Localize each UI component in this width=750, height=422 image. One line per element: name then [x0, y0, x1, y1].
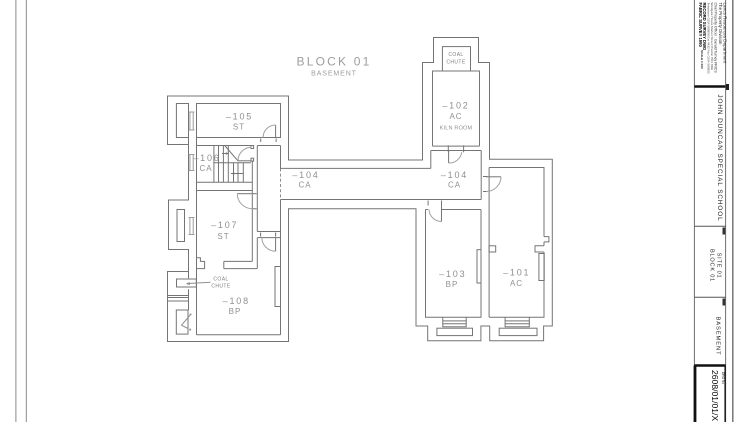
svg-text:2608/01/01/X: 2608/01/01/X — [710, 370, 720, 421]
svg-text:–102: –102 — [442, 101, 469, 111]
svg-text:CA: CA — [199, 164, 212, 173]
svg-text:JOHN DUNCAN SPECIAL SCHOOL: JOHN DUNCAN SPECIAL SCHOOL — [716, 94, 723, 221]
svg-text:BP: BP — [446, 280, 459, 289]
svg-text:BLOCK 01: BLOCK 01 — [709, 249, 715, 282]
svg-text:ST: ST — [217, 232, 229, 241]
svg-text:DRG No: DRG No — [721, 372, 725, 384]
svg-text:The Property Division: The Property Division — [718, 3, 723, 46]
svg-text:–107: –107 — [211, 220, 238, 230]
svg-text:–103: –103 — [439, 269, 466, 279]
svg-text:–104: –104 — [292, 170, 319, 180]
svg-text:BLOCK 01: BLOCK 01 — [297, 55, 372, 69]
svg-text:COAL: COAL — [213, 276, 228, 282]
svg-text:KILN ROOM: KILN ROOM — [440, 126, 473, 132]
svg-text:SITE 01: SITE 01 — [716, 253, 722, 279]
svg-text:COAL: COAL — [448, 52, 463, 58]
svg-text:AC: AC — [510, 279, 523, 288]
svg-text:–105: –105 — [226, 112, 253, 122]
svg-text:BASEMENT: BASEMENT — [311, 71, 357, 78]
svg-text:ST: ST — [233, 123, 245, 132]
svg-text:CHUTE: CHUTE — [446, 60, 465, 66]
svg-text:–104: –104 — [441, 170, 468, 180]
svg-text:–101: –101 — [503, 268, 530, 278]
svg-text:CA: CA — [448, 181, 461, 190]
svg-text:CHUTE: CHUTE — [211, 284, 230, 290]
svg-text:SCALE 1:100: SCALE 1:100 — [700, 50, 704, 69]
svg-text:FABRIC SURVEY 1990: FABRIC SURVEY 1990 — [698, 3, 703, 48]
svg-text:BP: BP — [229, 307, 242, 316]
svg-text:CA: CA — [298, 181, 311, 190]
svg-text:–106: –106 — [193, 153, 220, 163]
svg-text:AC: AC — [449, 112, 462, 121]
svg-text:–108: –108 — [223, 296, 250, 306]
svg-text:BASEMENT: BASEMENT — [715, 316, 721, 355]
